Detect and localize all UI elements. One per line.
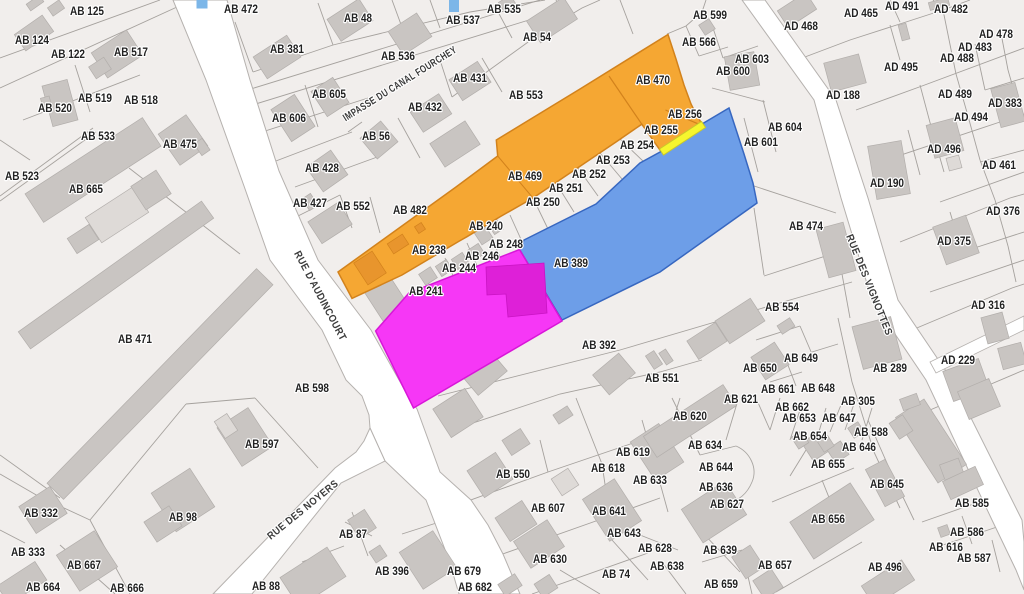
svg-text:AB 289: AB 289	[873, 361, 907, 375]
svg-text:AB 639: AB 639	[703, 543, 737, 557]
svg-text:AB 621: AB 621	[724, 392, 758, 406]
svg-text:AB 667: AB 667	[67, 558, 101, 572]
svg-text:AB 535: AB 535	[487, 2, 521, 16]
svg-text:AB 469: AB 469	[508, 169, 542, 183]
svg-text:AB 254: AB 254	[620, 138, 654, 152]
svg-text:AB 550: AB 550	[496, 467, 530, 481]
svg-text:AB 654: AB 654	[793, 429, 827, 443]
svg-text:AB 517: AB 517	[114, 45, 148, 59]
svg-text:AB 646: AB 646	[842, 440, 876, 454]
svg-text:AB 630: AB 630	[533, 552, 567, 566]
svg-text:AB 645: AB 645	[870, 477, 904, 491]
svg-text:AB 665: AB 665	[69, 182, 103, 196]
svg-text:AB 650: AB 650	[743, 361, 777, 375]
svg-text:AB 252: AB 252	[572, 167, 606, 181]
svg-text:AB 475: AB 475	[163, 137, 197, 151]
svg-text:AB 641: AB 641	[592, 504, 626, 518]
svg-text:AB 125: AB 125	[70, 4, 104, 18]
svg-text:AB 647: AB 647	[822, 411, 856, 425]
svg-text:AB 519: AB 519	[78, 91, 112, 105]
svg-text:AD 496: AD 496	[927, 142, 961, 156]
svg-text:AB 255: AB 255	[644, 123, 678, 137]
svg-text:AB 619: AB 619	[616, 445, 650, 459]
svg-text:AB 587: AB 587	[957, 551, 991, 565]
svg-text:AB 472: AB 472	[224, 2, 258, 16]
svg-text:AB 396: AB 396	[375, 564, 409, 578]
svg-text:AD 376: AD 376	[986, 204, 1020, 218]
svg-text:AB 332: AB 332	[24, 506, 58, 520]
svg-text:AB 586: AB 586	[950, 525, 984, 539]
svg-text:AD 478: AD 478	[979, 27, 1013, 41]
svg-text:AB 653: AB 653	[782, 411, 816, 425]
svg-text:AB 554: AB 554	[765, 300, 799, 314]
svg-text:AB 604: AB 604	[768, 120, 802, 134]
svg-text:AB 520: AB 520	[38, 101, 72, 115]
svg-text:AB 496: AB 496	[868, 560, 902, 574]
svg-text:AB 618: AB 618	[591, 461, 625, 475]
svg-text:AB 381: AB 381	[270, 42, 304, 56]
svg-text:AB 585: AB 585	[955, 496, 989, 510]
svg-text:AB 633: AB 633	[633, 473, 667, 487]
svg-text:AB 598: AB 598	[295, 381, 329, 395]
svg-text:AB 74: AB 74	[602, 567, 630, 581]
svg-text:AB 88: AB 88	[252, 579, 280, 593]
svg-text:AB 389: AB 389	[554, 256, 588, 270]
svg-text:AB 537: AB 537	[446, 13, 480, 27]
svg-text:AB 428: AB 428	[305, 161, 339, 175]
svg-text:AB 54: AB 54	[523, 30, 551, 44]
svg-text:AB 664: AB 664	[26, 580, 60, 594]
svg-text:AD 491: AD 491	[885, 0, 919, 13]
svg-text:AB 48: AB 48	[344, 11, 372, 25]
svg-text:AD 495: AD 495	[884, 60, 918, 74]
svg-text:AB 244: AB 244	[442, 261, 476, 275]
svg-text:AB 536: AB 536	[381, 49, 415, 63]
svg-text:AB 253: AB 253	[596, 153, 630, 167]
svg-text:AB 552: AB 552	[336, 199, 370, 213]
svg-text:AB 655: AB 655	[811, 457, 845, 471]
svg-text:AB 431: AB 431	[453, 71, 487, 85]
svg-text:AB 256: AB 256	[668, 107, 702, 121]
svg-text:AB 124: AB 124	[15, 33, 49, 47]
svg-text:AB 606: AB 606	[272, 111, 306, 125]
svg-text:AB 588: AB 588	[854, 425, 888, 439]
svg-text:AB 518: AB 518	[124, 93, 158, 107]
svg-text:AB 644: AB 644	[699, 460, 733, 474]
svg-text:AB 638: AB 638	[650, 559, 684, 573]
svg-text:AB 601: AB 601	[744, 135, 778, 149]
svg-text:AB 599: AB 599	[693, 8, 727, 22]
svg-text:AB 250: AB 250	[526, 195, 560, 209]
svg-text:AB 122: AB 122	[51, 47, 85, 61]
svg-text:AD 188: AD 188	[826, 88, 860, 102]
svg-text:AB 392: AB 392	[582, 338, 616, 352]
svg-text:AD 488: AD 488	[940, 51, 974, 65]
svg-text:AB 628: AB 628	[638, 541, 672, 555]
svg-text:AD 229: AD 229	[941, 353, 975, 367]
svg-text:AD 465: AD 465	[844, 6, 878, 20]
svg-text:AD 482: AD 482	[934, 2, 968, 16]
svg-text:AB 427: AB 427	[293, 196, 327, 210]
svg-text:AB 600: AB 600	[716, 64, 750, 78]
svg-text:AB 620: AB 620	[673, 409, 707, 423]
svg-text:AD 461: AD 461	[982, 158, 1016, 172]
svg-text:AB 648: AB 648	[801, 381, 835, 395]
svg-text:AB 566: AB 566	[682, 35, 716, 49]
svg-text:AB 656: AB 656	[811, 512, 845, 526]
svg-text:AB 666: AB 666	[110, 581, 144, 594]
svg-text:AB 643: AB 643	[607, 526, 641, 540]
svg-text:AB 470: AB 470	[636, 73, 670, 87]
svg-text:AD 375: AD 375	[937, 234, 971, 248]
svg-text:AB 661: AB 661	[761, 382, 795, 396]
svg-text:AB 474: AB 474	[789, 219, 823, 233]
svg-text:AB 553: AB 553	[509, 88, 543, 102]
svg-text:AD 190: AD 190	[870, 176, 904, 190]
svg-text:AB 523: AB 523	[5, 169, 39, 183]
svg-text:AB 305: AB 305	[841, 394, 875, 408]
svg-text:AB 87: AB 87	[339, 527, 367, 541]
svg-text:AD 468: AD 468	[784, 19, 818, 33]
svg-text:AB 238: AB 238	[412, 243, 446, 257]
svg-text:AB 533: AB 533	[81, 129, 115, 143]
svg-text:AB 627: AB 627	[710, 497, 744, 511]
svg-text:AD 489: AD 489	[938, 87, 972, 101]
svg-text:AB 241: AB 241	[409, 284, 443, 298]
svg-text:AB 432: AB 432	[408, 100, 442, 114]
svg-text:AD 316: AD 316	[971, 298, 1005, 312]
svg-text:AB 98: AB 98	[169, 510, 197, 524]
svg-text:AB 471: AB 471	[118, 332, 152, 346]
svg-text:AB 649: AB 649	[784, 351, 818, 365]
svg-text:AB 607: AB 607	[531, 501, 565, 515]
svg-text:AB 597: AB 597	[245, 437, 279, 451]
svg-text:AB 634: AB 634	[688, 438, 722, 452]
svg-text:AB 482: AB 482	[393, 203, 427, 217]
svg-text:AB 659: AB 659	[704, 577, 738, 591]
svg-text:AB 240: AB 240	[469, 219, 503, 233]
svg-text:AB 605: AB 605	[312, 87, 346, 101]
svg-text:AB 56: AB 56	[362, 129, 390, 143]
svg-text:AB 682: AB 682	[458, 580, 492, 594]
svg-text:AD 383: AD 383	[988, 96, 1022, 110]
svg-text:AB 679: AB 679	[447, 564, 481, 578]
svg-text:AB 657: AB 657	[758, 558, 792, 572]
svg-text:AB 333: AB 333	[11, 545, 45, 559]
svg-text:AD 494: AD 494	[954, 110, 988, 124]
svg-text:AB 636: AB 636	[699, 480, 733, 494]
svg-text:AB 251: AB 251	[549, 181, 583, 195]
svg-text:AB 551: AB 551	[645, 371, 679, 385]
